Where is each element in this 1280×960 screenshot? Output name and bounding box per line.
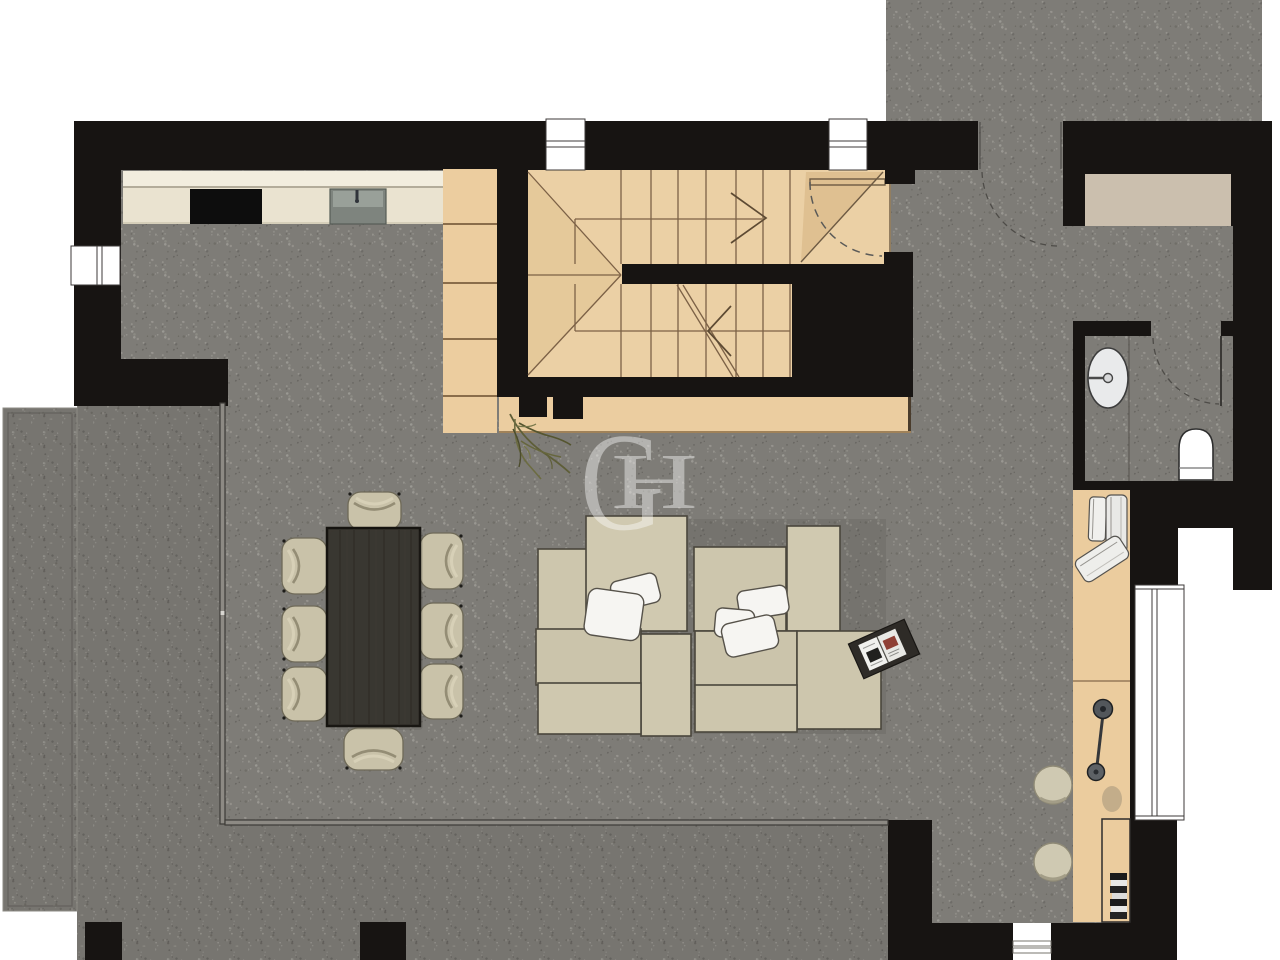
- svg-text:H: H: [611, 439, 698, 526]
